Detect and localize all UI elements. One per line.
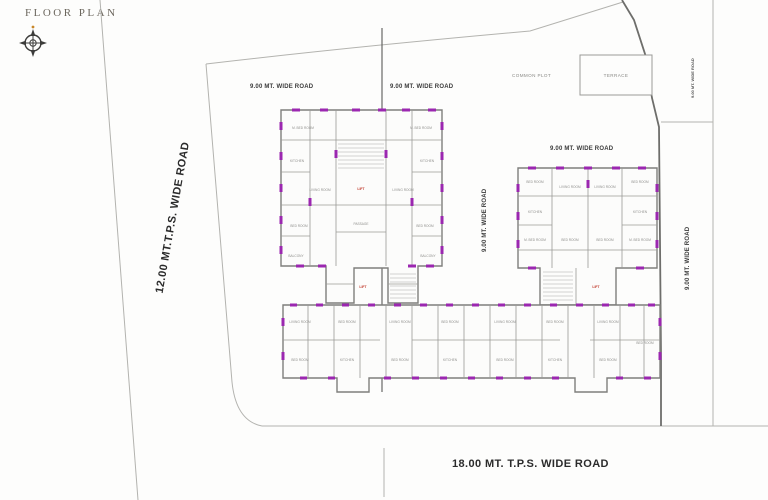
road-label-right-block-top: 9.00 MT. WIDE ROAD (550, 146, 614, 152)
road-label-18mt: 18.00 MT. T.P.S. WIDE ROAD (452, 458, 609, 470)
room-label: M. BED ROOM (524, 238, 546, 242)
room-label: BED ROOM (290, 224, 308, 228)
floor-plan-drawing: FLOOR PLAN 12.00 MT.T.P.S. WIDE ROAD 18.… (0, 0, 768, 500)
common-plot-area: COMMON PLOT TERRACE (512, 55, 652, 95)
east-road-boundary (661, 0, 713, 426)
road-label-top-left: 9.00 MT. WIDE ROAD (250, 84, 314, 90)
left-building-outline (281, 110, 442, 303)
room-label: LIVING ROOM (559, 185, 581, 189)
room-label: BED ROOM (338, 320, 356, 324)
room-label: BED ROOM (441, 320, 459, 324)
left-road-outer-edge (100, 0, 138, 500)
room-label: KITCHEN (633, 210, 648, 214)
room-label: KITCHEN (290, 159, 305, 163)
page-title: FLOOR PLAN (25, 7, 118, 19)
room-label: KITCHEN (443, 358, 458, 362)
road-label-right-vertical: 9.00 MT. WIDE ROAD (685, 226, 691, 290)
room-label: LIVING ROOM (389, 320, 411, 324)
left-lift-label: LIFT (357, 187, 365, 191)
room-label: BED ROOM (391, 358, 409, 362)
room-label: M. BED ROOM (410, 126, 432, 130)
road-label-12mt: 12.00 MT.T.P.S. WIDE ROAD (154, 141, 192, 294)
room-label: BALCONY (420, 254, 436, 258)
room-label: PASSAGE (354, 222, 369, 226)
right-building: LIFT BED ROOM LIVING ROOM LIVING ROOM BE… (518, 168, 657, 305)
room-label: BED ROOM (636, 341, 654, 345)
north-compass-icon (19, 26, 47, 57)
room-label: BED ROOM (561, 238, 579, 242)
room-label: KITCHEN (420, 159, 435, 163)
room-label: KITCHEN (548, 358, 563, 362)
right-building-outline (518, 168, 657, 305)
bottom-wing: LIVING ROOM BED ROOM BED ROOM KITCHEN LI… (283, 305, 660, 392)
room-label: LIVING ROOM (392, 188, 414, 192)
room-label: BED ROOM (416, 224, 434, 228)
room-label: BED ROOM (526, 180, 544, 184)
room-label: LIVING ROOM (494, 320, 516, 324)
road-label-middle-vertical: 9.00 MT. WIDE ROAD (482, 188, 488, 252)
room-label: LIVING ROOM (594, 185, 616, 189)
compass-north-tip (32, 26, 35, 29)
room-label: LIVING ROOM (309, 188, 331, 192)
plot-north-boundary (206, 2, 623, 64)
road-label-top-right: 9.00 MT. WIDE ROAD (390, 84, 454, 90)
common-plot-label: COMMON PLOT (512, 73, 551, 78)
terrace-label: TERRACE (604, 73, 629, 78)
room-label: M. BED ROOM (292, 126, 314, 130)
room-label: BED ROOM (546, 320, 564, 324)
plot-west-boundary (206, 64, 262, 426)
room-label: BED ROOM (496, 358, 514, 362)
room-label: BALCONY (288, 254, 304, 258)
room-label: LIVING ROOM (289, 320, 311, 324)
room-label: LIVING ROOM (597, 320, 619, 324)
room-label: BED ROOM (596, 238, 614, 242)
room-label: KITCHEN (528, 210, 543, 214)
room-label: BED ROOM (631, 180, 649, 184)
road-label-far-right-small: 9.00 MT. WIDE ROAD (690, 58, 695, 98)
left-stair-label: LIFT (359, 285, 367, 289)
right-stair-label: LIFT (592, 285, 600, 289)
room-label: KITCHEN (340, 358, 355, 362)
room-label: BED ROOM (599, 358, 617, 362)
room-label: M. BED ROOM (629, 238, 651, 242)
left-building: LIFT LIFT M. BED ROOM M. BED ROOM KITCHE… (281, 110, 442, 303)
floor-plan-page: FLOOR PLAN 12.00 MT.T.P.S. WIDE ROAD 18.… (0, 0, 768, 500)
room-label: BED ROOM (291, 358, 309, 362)
